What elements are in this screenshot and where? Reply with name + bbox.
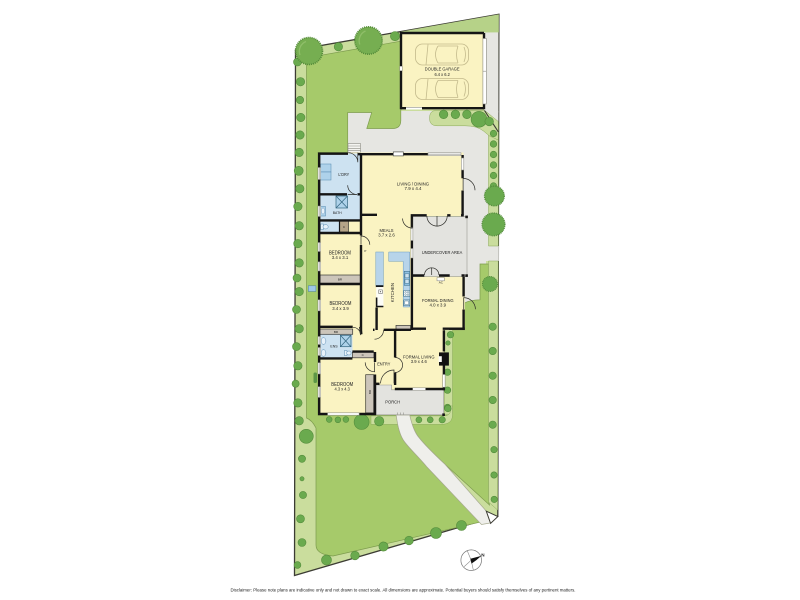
svg-text:3.7 x 2.6: 3.7 x 2.6	[378, 232, 395, 237]
svg-text:3.9 x 4.6: 3.9 x 4.6	[411, 359, 428, 364]
svg-text:BATH: BATH	[333, 211, 342, 215]
svg-text:Disclaimer: Please note plans: Disclaimer: Please note plans are indica…	[231, 588, 576, 593]
svg-text:N: N	[481, 553, 485, 558]
svg-text:PORCH: PORCH	[385, 399, 400, 404]
svg-text:ENS: ENS	[330, 344, 338, 348]
svg-text:7.9 x 4.4: 7.9 x 4.4	[405, 186, 423, 191]
svg-text:6.4 x 6.2: 6.4 x 6.2	[434, 72, 450, 77]
svg-text:DOUBLE GARAGE: DOUBLE GARAGE	[425, 66, 460, 71]
svg-text:3.4 x 3.1: 3.4 x 3.1	[332, 255, 349, 260]
svg-text:3.4 x 3.9: 3.4 x 3.9	[332, 306, 349, 311]
svg-text:4.0 x 3.9: 4.0 x 3.9	[430, 303, 447, 308]
svg-text:KITCHEN: KITCHEN	[390, 283, 395, 302]
svg-text:ENTRY: ENTRY	[377, 362, 390, 367]
svg-text:UNDERCOVER AREA: UNDERCOVER AREA	[422, 250, 463, 255]
svg-text:4.3 x 4.3: 4.3 x 4.3	[335, 387, 351, 392]
svg-text:L'DRY: L'DRY	[338, 172, 349, 177]
svg-text:P: P	[364, 249, 366, 253]
